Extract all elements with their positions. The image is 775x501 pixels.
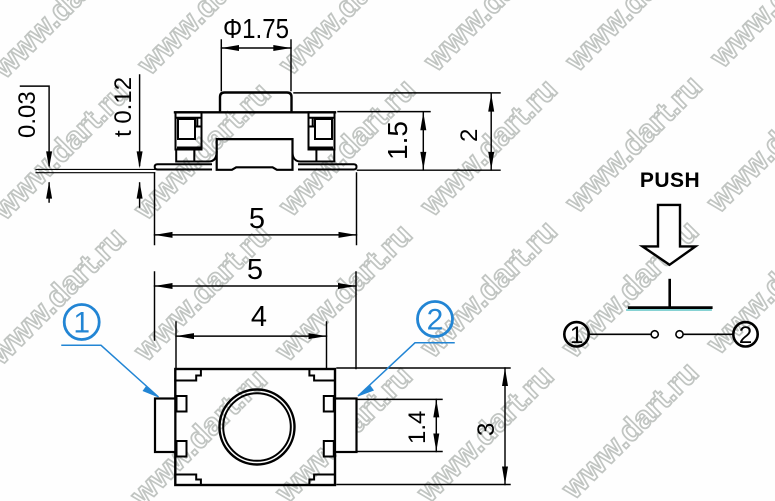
svg-text:t 0.12: t 0.12 <box>110 77 137 137</box>
svg-text:2: 2 <box>427 304 444 337</box>
svg-text:3: 3 <box>473 423 500 436</box>
svg-text:5: 5 <box>247 254 263 286</box>
svg-text:5: 5 <box>249 203 265 235</box>
svg-text:1: 1 <box>570 322 583 349</box>
svg-text:Φ1.75: Φ1.75 <box>223 13 289 44</box>
svg-text:1: 1 <box>73 307 90 340</box>
svg-text:1.5: 1.5 <box>382 121 413 160</box>
svg-text:0.03: 0.03 <box>14 91 41 138</box>
svg-text:PUSH: PUSH <box>640 169 700 192</box>
svg-text:2: 2 <box>739 322 752 349</box>
svg-text:1.4: 1.4 <box>404 411 431 444</box>
svg-text:2: 2 <box>456 129 483 142</box>
svg-text:4: 4 <box>251 301 267 333</box>
